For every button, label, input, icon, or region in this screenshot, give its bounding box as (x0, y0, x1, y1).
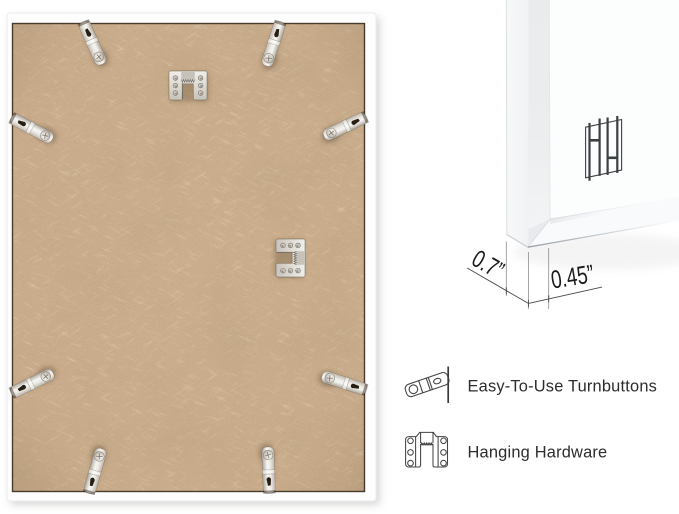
svg-text:Hanging Hardware: Hanging Hardware (468, 444, 608, 462)
svg-text:Easy-To-Use Turnbuttons: Easy-To-Use Turnbuttons (468, 378, 658, 396)
